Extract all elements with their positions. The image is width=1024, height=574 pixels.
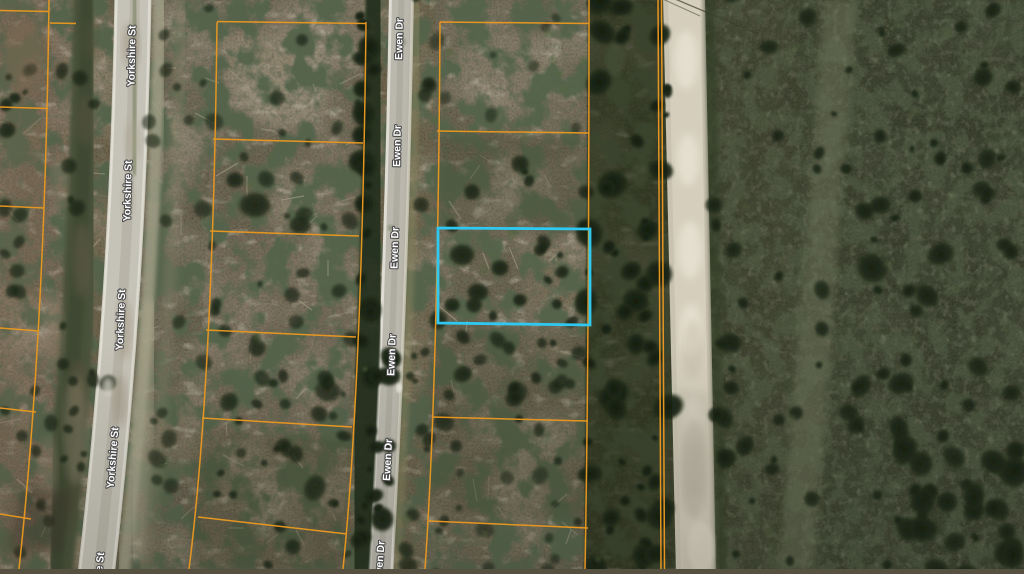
svg-text:Ewen Dr: Ewen Dr — [388, 227, 401, 269]
svg-text:Yorkshire St: Yorkshire St — [125, 25, 138, 87]
svg-text:Ewen Dr: Ewen Dr — [385, 334, 398, 376]
svg-text:Yorkshire St: Yorkshire St — [121, 160, 135, 222]
svg-text:Ewen Dr: Ewen Dr — [393, 18, 406, 60]
svg-text:Ewen Dr: Ewen Dr — [391, 125, 404, 167]
svg-text:Ewen Dr: Ewen Dr — [372, 540, 387, 569]
svg-text:Ewen Dr: Ewen Dr — [381, 439, 395, 482]
